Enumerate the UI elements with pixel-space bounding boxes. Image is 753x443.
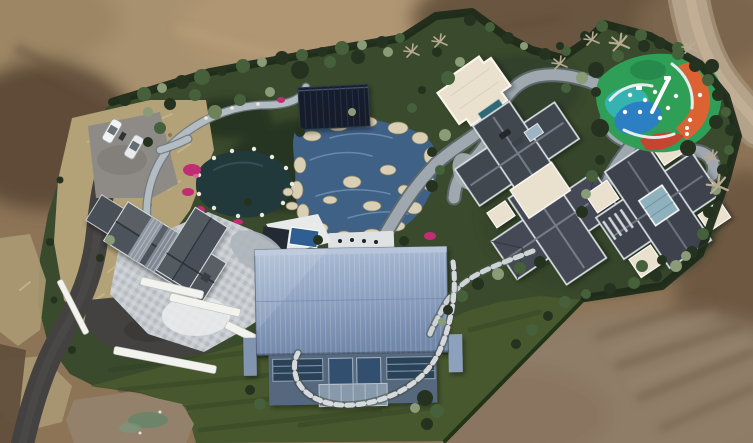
- dark-pergola: [298, 84, 370, 130]
- aerial-photo-stage: Top-down drone photograph of a hedged es…: [0, 0, 753, 443]
- garden-pond: [196, 151, 292, 218]
- barn-window: [357, 358, 381, 384]
- aerial-photo: Top-down drone photograph of a hedged es…: [0, 0, 753, 443]
- barn-window: [329, 358, 353, 384]
- estate-aerial-scene: [0, 0, 753, 443]
